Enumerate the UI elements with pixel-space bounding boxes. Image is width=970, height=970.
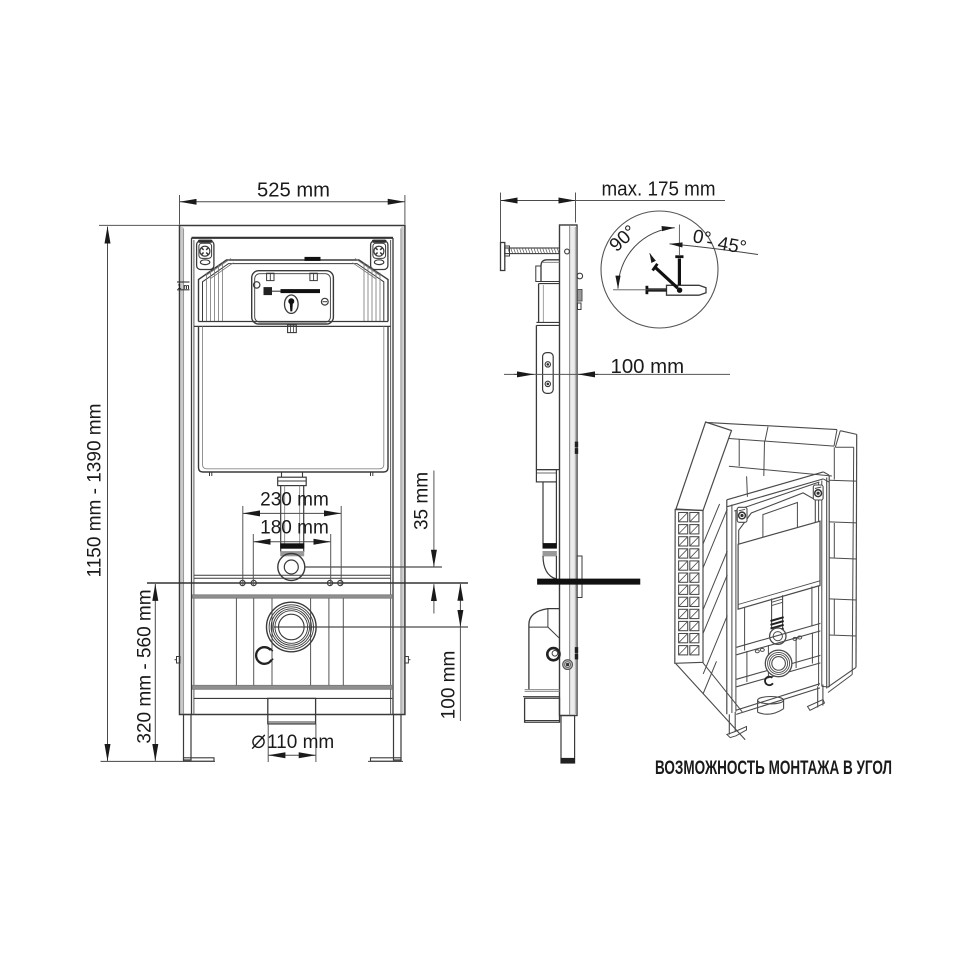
svg-text:230 mm: 230 mm [260, 490, 329, 511]
svg-text:1150 mm - 1390 mm: 1150 mm - 1390 mm [85, 404, 106, 578]
svg-text:110 mm: 110 mm [267, 732, 334, 753]
svg-text:100 mm: 100 mm [439, 651, 460, 720]
svg-text:525 mm: 525 mm [257, 180, 330, 202]
svg-text:180 mm: 180 mm [260, 518, 329, 539]
svg-text:35 mm: 35 mm [412, 472, 433, 530]
svg-text:100 mm: 100 mm [611, 356, 685, 378]
svg-text:ВОЗМОЖНОСТЬ МОНТАЖА В УГОЛ: ВОЗМОЖНОСТЬ МОНТАЖА В УГОЛ [655, 757, 892, 779]
svg-text:320 mm - 560 mm: 320 mm - 560 mm [135, 589, 156, 743]
svg-text:max. 175 mm: max. 175 mm [602, 178, 716, 201]
